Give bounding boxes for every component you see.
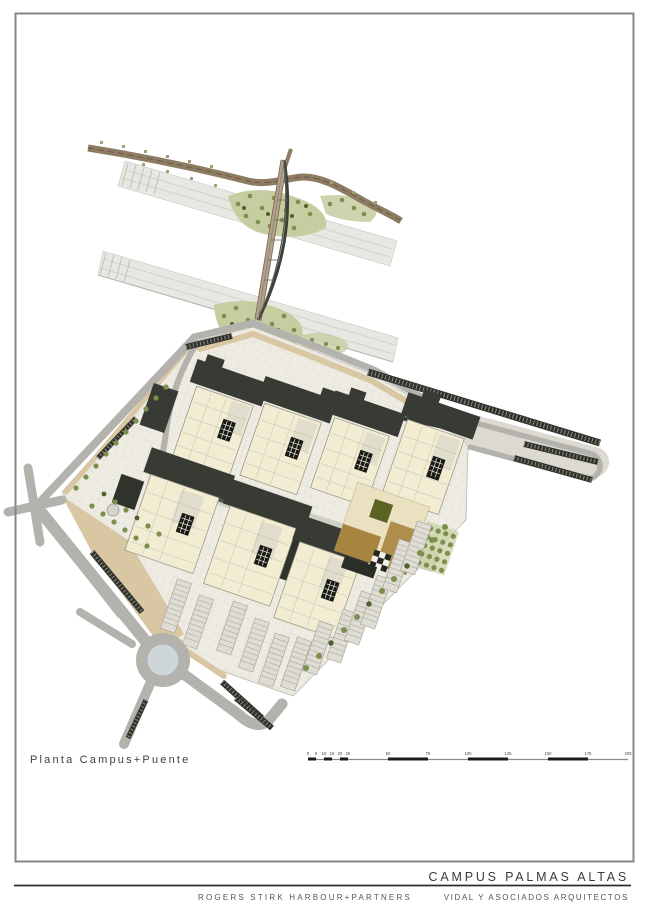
scale-label: 50 bbox=[386, 751, 391, 756]
scale-label: 75 bbox=[426, 751, 431, 756]
site-plan-svg: Planta Campus+Puente 0 5 10 15 20 25 50 … bbox=[0, 0, 650, 919]
entry-fountain bbox=[107, 504, 119, 516]
architect-name-right: VIDAL Y ASOCIADOS ARQUITECTOS bbox=[444, 893, 629, 902]
footer-title-block: CAMPUS PALMAS ALTAS ROGERS STIRK HARBOUR… bbox=[14, 870, 631, 902]
project-title: CAMPUS PALMAS ALTAS bbox=[429, 870, 629, 884]
architect-name-left: ROGERS STIRK HARBOUR+PARTNERS bbox=[198, 893, 412, 902]
scale-label: 20 bbox=[338, 751, 343, 756]
title-block: Planta Campus+Puente bbox=[30, 754, 191, 766]
scale-label: 5 bbox=[315, 751, 318, 756]
scale-label: 125 bbox=[505, 751, 513, 756]
scale-bar: 0 5 10 15 20 25 50 75 100 125 150 175 20… bbox=[307, 751, 632, 760]
scale-label: 150 bbox=[545, 751, 553, 756]
scale-label: 175 bbox=[585, 751, 593, 756]
ne-parking-arm bbox=[466, 421, 600, 479]
scale-label: 10 bbox=[322, 751, 327, 756]
scale-label: 15 bbox=[330, 751, 335, 756]
roundabout bbox=[136, 633, 190, 687]
plan-title: Planta Campus+Puente bbox=[30, 754, 191, 766]
architectural-plan-sheet: Planta Campus+Puente 0 5 10 15 20 25 50 … bbox=[0, 0, 650, 919]
scale-label: 0 bbox=[307, 751, 310, 756]
scale-label: 25 bbox=[346, 751, 351, 756]
scale-label: 100 bbox=[465, 751, 473, 756]
scale-label: 200 bbox=[625, 751, 633, 756]
